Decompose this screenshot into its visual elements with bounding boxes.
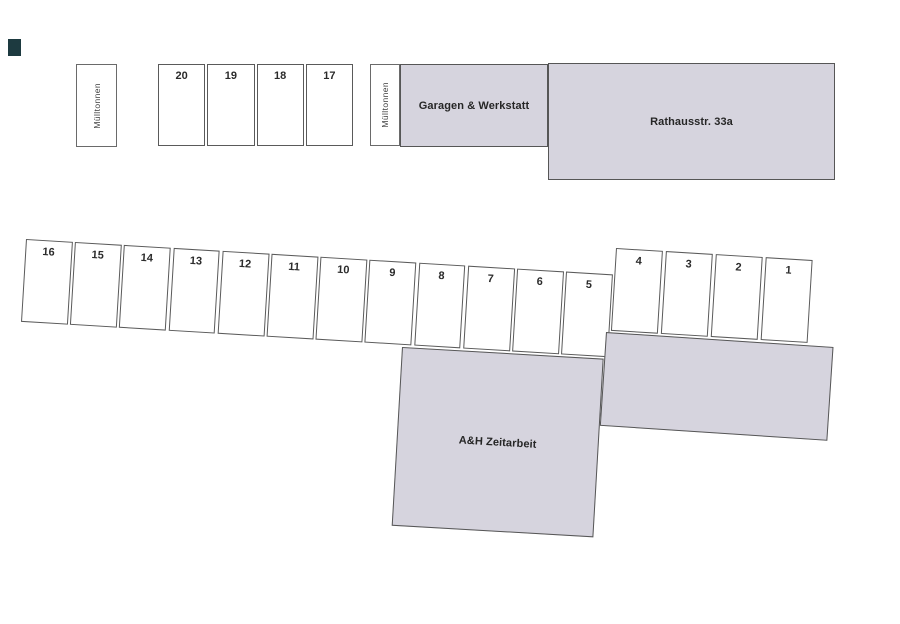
parking-space-number: 17 xyxy=(323,65,335,82)
waste-bin-area-2: Mülltonnen xyxy=(370,64,400,146)
parking-space-number: 5 xyxy=(585,274,592,291)
parking-space-19: 19 xyxy=(207,64,254,146)
parking-space-number: 16 xyxy=(42,241,55,259)
parking-space-9: 9 xyxy=(365,260,417,346)
parking-space-number: 18 xyxy=(274,65,286,82)
parking-space-17: 17 xyxy=(306,64,353,146)
parking-space-3: 3 xyxy=(661,251,713,337)
parking-space-number: 6 xyxy=(536,271,543,288)
parking-row-top: 20191817 xyxy=(158,64,353,146)
parking-space-number: 11 xyxy=(288,256,301,274)
parking-space-2: 2 xyxy=(711,254,763,340)
building-rathausstr-33a: Rathausstr. 33a xyxy=(548,63,835,180)
parking-space-16: 16 xyxy=(21,239,73,325)
parking-space-number: 4 xyxy=(635,250,642,267)
parking-row-middle: 1615141312111098765 xyxy=(21,239,613,357)
parking-space-number: 10 xyxy=(337,259,350,277)
parking-space-number: 7 xyxy=(487,268,494,285)
parking-space-8: 8 xyxy=(414,263,466,349)
building-garagen-werkstatt: Garagen & Werkstatt xyxy=(400,64,548,147)
building-ah-zeitarbeit: A&H Zeitarbeit xyxy=(392,347,604,537)
building-annex xyxy=(600,332,834,441)
parking-space-number: 15 xyxy=(91,244,104,262)
waste-bin-area-1: Mülltonnen xyxy=(76,64,117,147)
parking-space-number: 19 xyxy=(225,65,237,82)
parking-space-number: 1 xyxy=(785,259,792,276)
parking-space-number: 8 xyxy=(438,265,445,282)
building-label: A&H Zeitarbeit xyxy=(458,434,536,450)
parking-space-15: 15 xyxy=(70,242,122,328)
waste-bin-label: Mülltonnen xyxy=(92,83,102,129)
parking-space-18: 18 xyxy=(257,64,304,146)
parking-space-1: 1 xyxy=(761,257,813,343)
parking-space-11: 11 xyxy=(267,254,319,340)
scan-artifact-mark xyxy=(8,39,21,56)
parking-space-10: 10 xyxy=(316,257,368,343)
parking-space-20: 20 xyxy=(158,64,205,146)
parking-space-12: 12 xyxy=(217,251,269,337)
parking-space-14: 14 xyxy=(119,245,171,331)
parking-space-6: 6 xyxy=(512,269,564,355)
parking-space-number: 20 xyxy=(176,65,188,82)
parking-space-7: 7 xyxy=(463,266,515,352)
parking-space-number: 9 xyxy=(389,262,396,279)
building-label: Garagen & Werkstatt xyxy=(419,100,530,112)
building-label: Rathausstr. 33a xyxy=(650,116,733,128)
parking-space-number: 13 xyxy=(189,250,202,268)
waste-bin-label: Mülltonnen xyxy=(380,82,390,128)
parking-space-number: 3 xyxy=(685,253,692,270)
parking-space-13: 13 xyxy=(168,248,220,334)
parking-space-4: 4 xyxy=(611,248,663,334)
parking-space-number: 2 xyxy=(735,256,742,273)
parking-row-right: 4321 xyxy=(611,248,813,343)
site-plan: { "plan": { "type": "parking-site-plan",… xyxy=(0,0,900,624)
parking-space-number: 14 xyxy=(140,247,153,265)
parking-space-number: 12 xyxy=(239,253,252,271)
